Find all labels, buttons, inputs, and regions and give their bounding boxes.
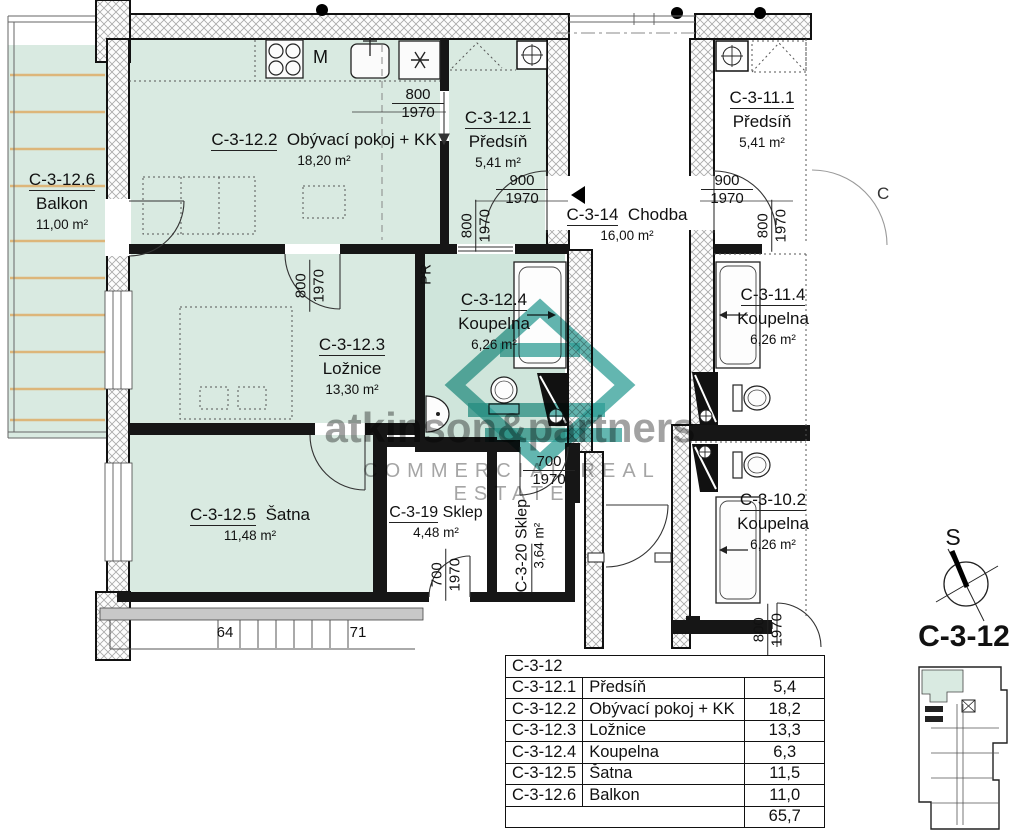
label-obyvaci: C-3-12.2 Obývací pokoj + KK 18,20 m² — [190, 128, 458, 171]
compass-icon — [936, 549, 998, 621]
label-koupelna: C-3-12.4 Koupelna 6,26 m² — [446, 288, 542, 354]
label-sklep19: C-3-19 Sklep 4,48 m² — [384, 502, 488, 543]
toilet-icon — [733, 452, 770, 478]
plan-title: C-3-12 — [916, 620, 1012, 654]
table-row: C-3-12.1Předsíň5,4 — [506, 677, 825, 699]
toilet-icon — [733, 385, 770, 411]
table-row: C-3-12.6Balkon11,0 — [506, 785, 825, 807]
stair-number-first: 64 — [210, 624, 240, 641]
dim-sklep19-door: 7001970 — [428, 549, 464, 601]
table-row: C-3-12.2Obývací pokoj + KK18,2 — [506, 699, 825, 721]
label-koupelna3: C-3-10.2 Koupelna 6,26 m² — [730, 488, 816, 554]
table-row: C-3-12.5Šatna11,5 — [506, 763, 825, 785]
microwave-label: M — [313, 47, 328, 68]
floorplan-page: atkinson&partners COMMERCIAL REAL ESTATE… — [0, 0, 1024, 831]
label-satna: C-3-12.5 Šatna 11,48 m² — [160, 503, 340, 546]
dim-koupelna102-door: 8001970 — [750, 604, 786, 656]
building-minimap — [919, 667, 1007, 829]
area-table: C-3-12 C-3-12.1Předsíň5,4 C-3-12.2Obývac… — [505, 655, 825, 828]
label-loznice: C-3-12.3 Ložnice 13,30 m² — [300, 333, 404, 399]
door-cutoff — [812, 170, 887, 245]
dim-neighbor-entry-side: 8001970 — [754, 200, 790, 252]
label-predsin: C-3-12.1 Předsíň 5,41 m² — [450, 106, 546, 172]
label-koupelna2: C-3-11.4 Koupelna 6,26 m² — [730, 283, 816, 349]
table-row: C-3-12.4Koupelna6,3 — [506, 742, 825, 764]
watermark-brand: atkinson&partners — [318, 404, 702, 452]
wardrobe-dashed-2 — [752, 41, 806, 72]
label-balkon: C-3-12.6 Balkon 11,00 m² — [14, 168, 110, 234]
entrance-arrow-icon — [571, 186, 585, 204]
dim-loznice-door: 8001970 — [292, 260, 328, 312]
stairs — [100, 608, 423, 649]
stove-icon — [266, 40, 303, 78]
label-sklep20: C-3-20 Sklep 3,64 m² — [512, 484, 547, 608]
pr-label: PR — [418, 255, 435, 295]
table-total-row: 65,7 — [506, 806, 825, 828]
dim-sklep20-door: 7001970 — [523, 453, 575, 489]
label-chodba: C-3-14 Chodba 16,00 m² — [562, 203, 692, 246]
dim-entry: 9001970 — [496, 172, 548, 208]
table-row: C-3-12.3Ložnice13,3 — [506, 720, 825, 742]
table-header-row: C-3-12 — [506, 656, 825, 678]
dim-neighbor-entry: 9001970 — [701, 172, 753, 208]
dishwasher-icon — [399, 41, 440, 79]
compass-south-label: S — [938, 524, 968, 551]
dim-living-hall: 8001970 — [392, 86, 444, 122]
stair-number-last: 71 — [343, 624, 373, 641]
dim-entry-side: 8001970 — [458, 200, 494, 252]
cutoff-label: C — [877, 184, 889, 204]
label-predsin2: C-3-11.1 Předsíň 5,41 m² — [714, 86, 810, 152]
